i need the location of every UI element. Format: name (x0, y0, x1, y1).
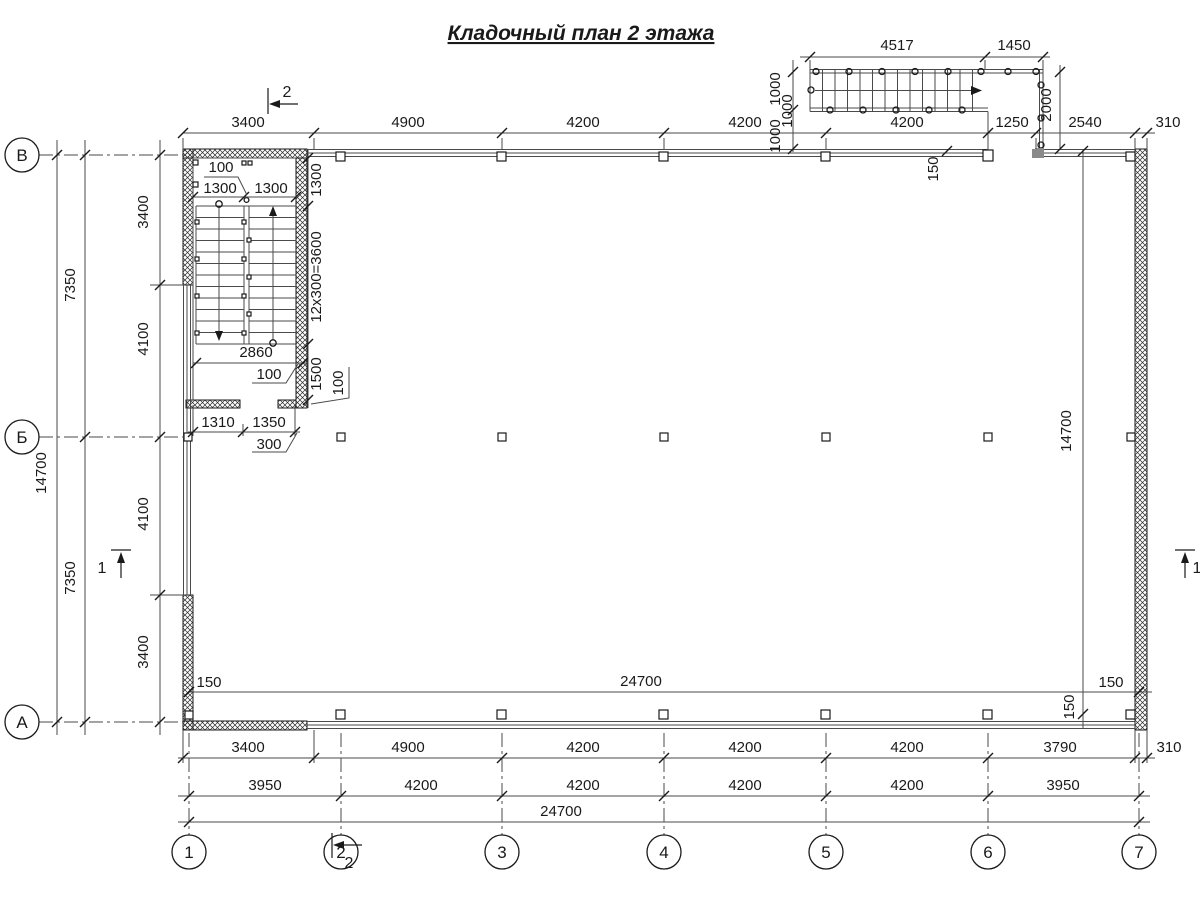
dim-stw-1500: 1500 (308, 357, 325, 390)
dim-stw-fl1: 1300 (203, 180, 236, 197)
dim-left-3400a: 3400 (135, 195, 152, 228)
dim-stw-1310: 1310 (201, 414, 234, 431)
dim-stw-gap: 100 (208, 159, 233, 176)
dim-b1-2: 4200 (566, 739, 599, 756)
dim-b1-3: 4200 (728, 739, 761, 756)
dim-top-7: 310 (1155, 114, 1180, 131)
floor-plan-drawing: Кладочный план 2 этажа (0, 0, 1200, 900)
dim-top-0: 3400 (231, 114, 264, 131)
dim-int-24700: 24700 (620, 673, 662, 690)
section-2-top: 2 (283, 84, 292, 101)
dim-b1-0: 3400 (231, 739, 264, 756)
section-2-bottom: 2 (345, 855, 354, 872)
dim-b1-5: 3790 (1043, 739, 1076, 756)
axis-row-b: Б (16, 428, 27, 447)
dim-b2-3: 4200 (728, 777, 761, 794)
dim-b2-4: 4200 (890, 777, 923, 794)
dim-ext-2000: 2000 (1038, 88, 1055, 121)
dim-stw-off2: 100 (330, 370, 347, 395)
dim-int-150-rot: 150 (1061, 694, 1078, 719)
dim-b2-5: 3950 (1046, 777, 1079, 794)
dim-stw-off1: 100 (256, 366, 281, 383)
dim-int-150-right: 150 (1098, 674, 1123, 691)
dim-int-14700: 14700 (1058, 410, 1075, 452)
dim-stw-2860: 2860 (239, 344, 272, 361)
dim-b2-0: 3950 (248, 777, 281, 794)
stair-up-arrow (269, 206, 277, 216)
dim-left-14700: 14700 (33, 452, 50, 494)
dim-top-6: 2540 (1068, 114, 1101, 131)
dim-ext-1000c: 1000 (767, 119, 784, 152)
axis-col-7: 7 (1134, 843, 1143, 862)
dim-left-7350b: 7350 (62, 561, 79, 594)
dim-b2-1: 4200 (404, 777, 437, 794)
dim-b1-6: 310 (1156, 739, 1181, 756)
dim-b2-2: 4200 (566, 777, 599, 794)
axis-row-v: В (16, 146, 27, 165)
axis-row-a: А (16, 713, 28, 732)
dim-top-5: 1250 (995, 114, 1028, 131)
dim-top-2: 4200 (566, 114, 599, 131)
axis-col-1: 1 (184, 843, 193, 862)
dim-stw-300: 300 (256, 436, 281, 453)
dim-left-4100b: 4100 (135, 497, 152, 530)
dim-top-4: 4200 (890, 114, 923, 131)
dim-left-4100a: 4100 (135, 322, 152, 355)
section-1-left: 1 (98, 560, 107, 577)
section-1-right: 1 (1193, 560, 1200, 577)
masonry-plan-sheet: Кладочный план 2 этажа (0, 0, 1200, 900)
axis-col-5: 5 (821, 843, 830, 862)
drawing-title: Кладочный план 2 этажа (448, 22, 715, 45)
dim-stw-landing: 1300 (308, 163, 325, 196)
dim-top-3: 4200 (728, 114, 761, 131)
door-jamb-left (983, 150, 993, 161)
dim-wall-offset-top: 150 (925, 156, 942, 181)
dim-stw-run: 12x300=3600 (308, 231, 325, 322)
dim-int-150-left: 150 (196, 674, 221, 691)
dim-top-1: 4900 (391, 114, 424, 131)
axis-grid (5, 138, 1156, 869)
axis-col-3: 3 (497, 843, 506, 862)
dim-stw-1350: 1350 (252, 414, 285, 431)
column-markers (184, 152, 1135, 719)
dim-left-3400b: 3400 (135, 635, 152, 668)
stair-direction-arrow (971, 86, 982, 95)
axis-col-6: 6 (983, 843, 992, 862)
landing-wall-junction (1035, 148, 1044, 158)
dim-b1-1: 4900 (391, 739, 424, 756)
dim-b3-24700: 24700 (540, 803, 582, 820)
stair-down-arrow (215, 331, 223, 341)
dim-ext-4517: 4517 (880, 37, 913, 54)
dim-left-7350a: 7350 (62, 268, 79, 301)
axis-col-4: 4 (659, 843, 668, 862)
dim-stw-fl2: 1300 (254, 180, 287, 197)
dim-b1-4: 4200 (890, 739, 923, 756)
dim-ext-1450: 1450 (997, 37, 1030, 54)
